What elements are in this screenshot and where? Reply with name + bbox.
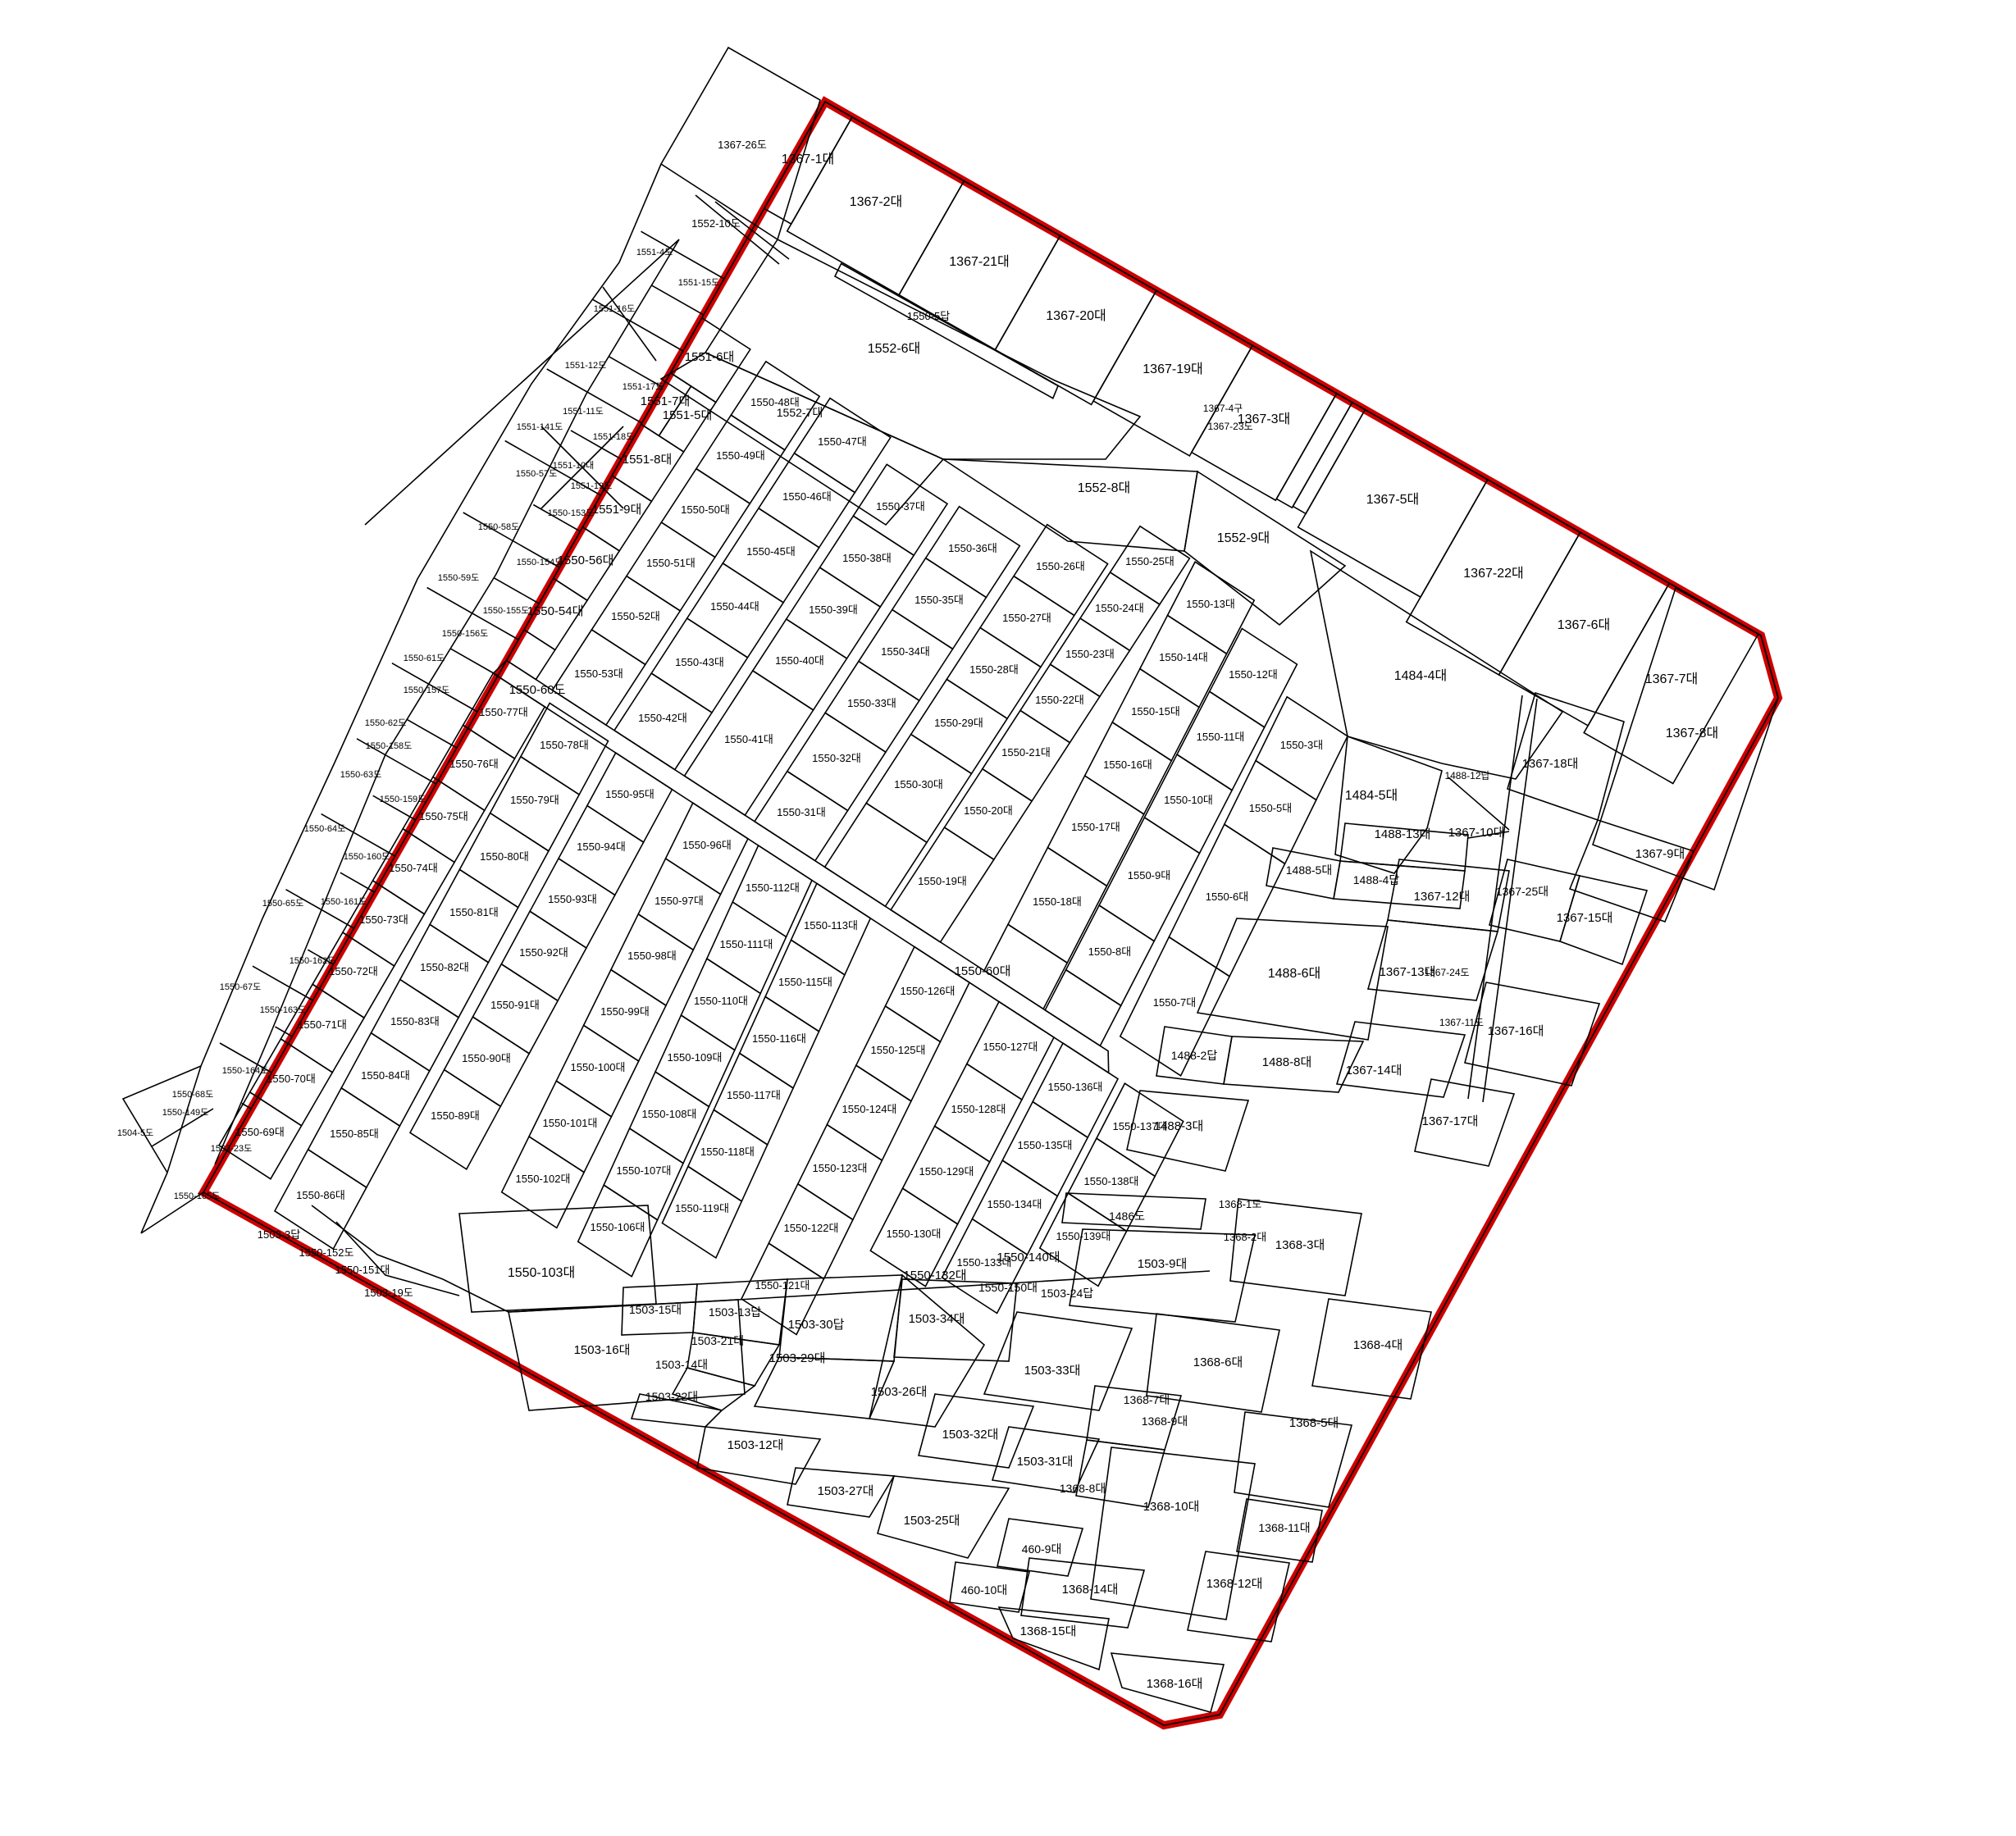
svg-text:1367-12대: 1367-12대 xyxy=(1414,890,1471,904)
svg-text:1550-154도: 1550-154도 xyxy=(517,558,563,567)
svg-text:1550-122대: 1550-122대 xyxy=(784,1222,839,1234)
svg-text:1550-12대: 1550-12대 xyxy=(1229,668,1278,681)
svg-text:1550-151대: 1550-151대 xyxy=(335,1264,390,1276)
svg-text:1550-150대: 1550-150대 xyxy=(978,1281,1038,1294)
svg-text:1488-2답: 1488-2답 xyxy=(1171,1049,1218,1062)
svg-text:1368-7대: 1368-7대 xyxy=(1124,1393,1170,1406)
svg-text:1503-14대: 1503-14대 xyxy=(655,1358,708,1371)
svg-text:1550-163도: 1550-163도 xyxy=(260,1005,307,1015)
svg-text:1368-15대: 1368-15대 xyxy=(1020,1624,1077,1638)
svg-text:1550-118대: 1550-118대 xyxy=(700,1146,755,1158)
svg-text:1550-62도: 1550-62도 xyxy=(365,718,407,728)
svg-text:1552-8대: 1552-8대 xyxy=(1078,481,1131,495)
svg-text:1550-76대: 1550-76대 xyxy=(449,758,499,770)
svg-text:1550-50대: 1550-50대 xyxy=(681,503,730,516)
svg-text:1550-23대: 1550-23대 xyxy=(1065,648,1115,660)
svg-text:1503-31대: 1503-31대 xyxy=(1017,1455,1074,1469)
svg-text:1550-119대: 1550-119대 xyxy=(675,1202,729,1214)
svg-text:1550-64도: 1550-64도 xyxy=(304,824,346,834)
svg-text:1367-15대: 1367-15대 xyxy=(1557,911,1613,925)
svg-text:1550-79대: 1550-79대 xyxy=(510,794,559,806)
svg-text:1550-100대: 1550-100대 xyxy=(571,1061,626,1073)
svg-text:1550-61도: 1550-61도 xyxy=(404,654,445,663)
svg-text:1503-3답: 1503-3답 xyxy=(258,1228,300,1241)
svg-text:1550-82대: 1550-82대 xyxy=(420,961,469,973)
svg-text:1550-36대: 1550-36대 xyxy=(948,542,997,554)
svg-text:1503-30답: 1503-30답 xyxy=(788,1318,845,1332)
svg-text:1550-37대: 1550-37대 xyxy=(876,500,925,513)
svg-text:1550-38대: 1550-38대 xyxy=(842,552,892,564)
svg-text:1550-109대: 1550-109대 xyxy=(668,1051,723,1064)
svg-text:1550-106대: 1550-106대 xyxy=(591,1221,645,1233)
svg-text:1550-68도: 1550-68도 xyxy=(172,1090,214,1100)
svg-text:1550-90대: 1550-90대 xyxy=(462,1052,511,1064)
svg-text:1550-57도: 1550-57도 xyxy=(516,469,558,479)
svg-text:1550-6대: 1550-6대 xyxy=(1206,891,1248,903)
svg-text:1367-21대: 1367-21대 xyxy=(949,254,1009,269)
svg-text:1550-17대: 1550-17대 xyxy=(1071,821,1120,833)
svg-text:1550-35대: 1550-35대 xyxy=(914,594,964,606)
svg-text:1550-26대: 1550-26대 xyxy=(1036,560,1085,572)
svg-text:1550-140대: 1550-140대 xyxy=(997,1251,1060,1264)
svg-text:1550-74대: 1550-74대 xyxy=(389,862,438,874)
svg-text:1368-12대: 1368-12대 xyxy=(1206,1577,1263,1591)
svg-text:1367-25대: 1367-25대 xyxy=(1496,885,1548,898)
svg-text:1550-108대: 1550-108대 xyxy=(642,1108,697,1120)
svg-text:1550-160도: 1550-160도 xyxy=(344,852,390,862)
svg-text:1367-8대: 1367-8대 xyxy=(1666,726,1719,740)
svg-text:1550-155도: 1550-155도 xyxy=(483,606,530,616)
svg-text:1550-112대: 1550-112대 xyxy=(746,882,800,894)
svg-text:1550-115대: 1550-115대 xyxy=(778,976,832,988)
svg-text:1550-58도: 1550-58도 xyxy=(478,522,520,532)
svg-text:1367-16대: 1367-16대 xyxy=(1488,1024,1544,1038)
svg-text:1550-71대: 1550-71대 xyxy=(298,1018,347,1031)
svg-text:1550-116대: 1550-116대 xyxy=(752,1032,806,1045)
svg-text:1550-13대: 1550-13대 xyxy=(1186,598,1235,610)
svg-text:1503-24답: 1503-24답 xyxy=(1041,1287,1093,1300)
svg-text:1550-101대: 1550-101대 xyxy=(543,1117,598,1129)
svg-text:1550-33대: 1550-33대 xyxy=(847,697,896,709)
svg-text:1550-59도: 1550-59도 xyxy=(438,573,480,583)
svg-text:1550-161도: 1550-161도 xyxy=(321,897,367,907)
svg-text:1550-20대: 1550-20대 xyxy=(964,804,1013,817)
svg-text:1367-19대: 1367-19대 xyxy=(1143,362,1202,376)
svg-text:1488-4답: 1488-4답 xyxy=(1353,873,1400,886)
svg-text:1550-103대: 1550-103대 xyxy=(508,1265,575,1280)
svg-text:1550-45대: 1550-45대 xyxy=(746,545,796,558)
svg-text:1550-47대: 1550-47대 xyxy=(818,435,867,448)
svg-text:1503-9대: 1503-9대 xyxy=(1138,1257,1188,1271)
svg-text:1503-27대: 1503-27대 xyxy=(818,1484,874,1498)
svg-text:1368-11대: 1368-11대 xyxy=(1258,1521,1310,1534)
svg-text:1550-153도: 1550-153도 xyxy=(548,508,595,518)
svg-text:1552-7대: 1552-7대 xyxy=(777,406,823,419)
svg-text:1488-13대: 1488-13대 xyxy=(1375,827,1431,841)
svg-text:1368-2대: 1368-2대 xyxy=(1224,1231,1266,1243)
svg-text:1550-46대: 1550-46대 xyxy=(782,490,832,503)
svg-text:1550-69대: 1550-69대 xyxy=(235,1126,285,1138)
svg-text:1550-125대: 1550-125대 xyxy=(871,1044,926,1056)
svg-text:1368-14대: 1368-14대 xyxy=(1062,1583,1119,1597)
svg-text:1550-86대: 1550-86대 xyxy=(296,1189,345,1201)
svg-text:1550-94대: 1550-94대 xyxy=(577,841,626,853)
svg-text:1551-11도: 1551-11도 xyxy=(563,407,604,417)
svg-text:1550-3대: 1550-3대 xyxy=(1280,739,1323,751)
svg-text:1551-12도: 1551-12도 xyxy=(565,361,607,371)
svg-text:1503-15대: 1503-15대 xyxy=(629,1303,682,1316)
svg-text:1550-54대: 1550-54대 xyxy=(527,604,584,618)
svg-text:1551-8대: 1551-8대 xyxy=(623,453,673,467)
svg-text:1550-129대: 1550-129대 xyxy=(919,1165,974,1178)
svg-text:1550-158도: 1550-158도 xyxy=(366,741,413,751)
svg-text:1550-80대: 1550-80대 xyxy=(480,850,529,863)
svg-text:1550-156도: 1550-156도 xyxy=(442,629,489,639)
svg-text:1550-96대: 1550-96대 xyxy=(682,839,732,851)
svg-text:1550-14대: 1550-14대 xyxy=(1159,651,1208,663)
svg-text:1550-73대: 1550-73대 xyxy=(359,913,408,926)
svg-text:1550-139대: 1550-139대 xyxy=(1056,1230,1111,1242)
svg-text:1550-42대: 1550-42대 xyxy=(638,712,687,724)
svg-text:1550-110대: 1550-110대 xyxy=(694,995,748,1007)
svg-text:1550-92대: 1550-92대 xyxy=(519,946,568,959)
svg-text:1484-4대: 1484-4대 xyxy=(1394,668,1448,683)
svg-text:1550-41대: 1550-41대 xyxy=(724,733,773,745)
svg-text:1551-7대: 1551-7대 xyxy=(641,394,691,408)
svg-text:1550-8대: 1550-8대 xyxy=(1088,945,1131,958)
svg-text:1367-17대: 1367-17대 xyxy=(1422,1114,1479,1128)
svg-text:1550-107대: 1550-107대 xyxy=(617,1164,672,1177)
svg-text:1550-75대: 1550-75대 xyxy=(419,810,468,822)
svg-text:1367-14대: 1367-14대 xyxy=(1346,1064,1403,1077)
svg-text:1503-16대: 1503-16대 xyxy=(574,1343,631,1357)
svg-text:1550-49대: 1550-49대 xyxy=(716,449,765,462)
svg-text:1503-32대: 1503-32대 xyxy=(942,1428,999,1442)
svg-text:1550-70대: 1550-70대 xyxy=(267,1073,316,1085)
svg-text:1550-21대: 1550-21대 xyxy=(1001,746,1051,759)
svg-text:1551-10대: 1551-10대 xyxy=(553,460,595,471)
svg-text:1552-9대: 1552-9대 xyxy=(1217,531,1270,545)
svg-text:1503-25대: 1503-25대 xyxy=(904,1514,960,1528)
svg-text:1552-6대: 1552-6대 xyxy=(868,341,921,356)
svg-text:1551-5대: 1551-5대 xyxy=(663,408,713,422)
svg-text:1550-124대: 1550-124대 xyxy=(842,1103,897,1115)
svg-text:1551-17도: 1551-17도 xyxy=(623,382,664,392)
svg-text:1550-138대: 1550-138대 xyxy=(1084,1175,1139,1187)
svg-text:1550-162도: 1550-162도 xyxy=(290,956,336,966)
svg-text:1550-85대: 1550-85대 xyxy=(330,1128,379,1140)
svg-text:1550-5답: 1550-5답 xyxy=(907,310,950,322)
svg-text:1550-44대: 1550-44대 xyxy=(710,600,759,613)
svg-text:1550-89대: 1550-89대 xyxy=(431,1109,480,1122)
svg-text:1368-1도: 1368-1도 xyxy=(1219,1198,1261,1210)
svg-text:1550-63도: 1550-63도 xyxy=(340,770,382,780)
svg-text:1550-43대: 1550-43대 xyxy=(675,656,724,668)
svg-text:1550-60도: 1550-60도 xyxy=(509,683,566,697)
svg-text:1552-10도: 1552-10도 xyxy=(691,217,741,230)
svg-text:1550-19대: 1550-19대 xyxy=(918,875,967,887)
svg-text:1550-27대: 1550-27대 xyxy=(1002,612,1051,624)
svg-text:1367-1대: 1367-1대 xyxy=(782,152,835,166)
svg-text:1550-83대: 1550-83대 xyxy=(390,1015,440,1027)
svg-text:1550-135대: 1550-135대 xyxy=(1018,1139,1073,1151)
svg-text:1367-13대: 1367-13대 xyxy=(1380,965,1436,979)
svg-text:1368-8대: 1368-8대 xyxy=(1060,1482,1106,1495)
svg-text:1550-93대: 1550-93대 xyxy=(548,893,597,905)
svg-text:1550-99대: 1550-99대 xyxy=(600,1005,650,1018)
svg-text:1550-60대: 1550-60대 xyxy=(955,964,1011,978)
svg-text:1368-16대: 1368-16대 xyxy=(1147,1677,1203,1691)
svg-text:1550-31대: 1550-31대 xyxy=(777,806,826,818)
svg-text:1550-30대: 1550-30대 xyxy=(894,778,943,790)
svg-text:1550-164도: 1550-164도 xyxy=(222,1066,269,1076)
svg-text:1367-5대: 1367-5대 xyxy=(1366,492,1420,507)
svg-text:1551-16도: 1551-16도 xyxy=(594,304,636,314)
svg-text:1503-13답: 1503-13답 xyxy=(709,1305,761,1319)
svg-text:1503-12대: 1503-12대 xyxy=(727,1438,784,1452)
svg-text:1368-3대: 1368-3대 xyxy=(1275,1238,1325,1252)
svg-text:1488-12답: 1488-12답 xyxy=(1444,770,1489,781)
svg-text:1550-84대: 1550-84대 xyxy=(361,1069,410,1082)
svg-text:1550-159도: 1550-159도 xyxy=(380,795,426,804)
svg-text:1368-6대: 1368-6대 xyxy=(1193,1355,1243,1369)
svg-text:1368-9대: 1368-9대 xyxy=(1142,1415,1188,1428)
svg-text:1550-25대: 1550-25대 xyxy=(1125,555,1174,567)
svg-text:1368-10대: 1368-10대 xyxy=(1143,1500,1200,1514)
svg-text:1550-10대: 1550-10대 xyxy=(1164,794,1213,806)
svg-text:1550-40대: 1550-40대 xyxy=(775,654,824,667)
svg-text:1550-136대: 1550-136대 xyxy=(1048,1081,1103,1093)
svg-text:1367-23도: 1367-23도 xyxy=(1207,421,1252,432)
svg-text:1488-6대: 1488-6대 xyxy=(1268,966,1321,981)
svg-text:1550-28대: 1550-28대 xyxy=(969,663,1019,676)
svg-text:1503-29대: 1503-29대 xyxy=(769,1351,826,1365)
svg-text:1550-97대: 1550-97대 xyxy=(655,895,704,907)
svg-text:1368-5대: 1368-5대 xyxy=(1289,1416,1339,1430)
svg-text:1550-15대: 1550-15대 xyxy=(1131,705,1180,718)
svg-text:1504-5도: 1504-5도 xyxy=(117,1128,153,1138)
svg-text:1367-18대: 1367-18대 xyxy=(1522,757,1579,771)
svg-text:1503-33대: 1503-33대 xyxy=(1024,1364,1081,1378)
svg-text:1551-9대: 1551-9대 xyxy=(592,503,642,517)
svg-text:1550-117대: 1550-117대 xyxy=(727,1089,781,1101)
svg-text:1503-23도: 1503-23도 xyxy=(211,1144,253,1154)
svg-text:1550-11대: 1550-11대 xyxy=(1197,731,1245,743)
svg-text:1484-5대: 1484-5대 xyxy=(1345,788,1398,803)
svg-text:1550-157도: 1550-157도 xyxy=(404,686,450,695)
svg-text:1550-81대: 1550-81대 xyxy=(449,906,499,918)
svg-text:1503-26대: 1503-26대 xyxy=(871,1385,928,1399)
svg-text:1550-102대: 1550-102대 xyxy=(516,1173,571,1185)
svg-text:1550-34대: 1550-34대 xyxy=(881,645,930,658)
svg-text:1550-39대: 1550-39대 xyxy=(809,604,858,616)
svg-text:1550-65도: 1550-65도 xyxy=(262,899,304,909)
svg-text:1367-7대: 1367-7대 xyxy=(1645,672,1699,686)
svg-text:1550-67도: 1550-67도 xyxy=(220,982,262,992)
svg-text:1367-10대: 1367-10대 xyxy=(1448,826,1505,840)
svg-text:1551-4도: 1551-4도 xyxy=(636,248,673,257)
svg-text:1367-6대: 1367-6대 xyxy=(1558,617,1611,632)
svg-text:1550-51대: 1550-51대 xyxy=(646,557,696,569)
svg-text:460-10대: 460-10대 xyxy=(961,1583,1007,1597)
svg-text:1488-3대: 1488-3대 xyxy=(1154,1119,1204,1133)
svg-text:1551-18도: 1551-18도 xyxy=(593,432,635,442)
svg-text:1550-52대: 1550-52대 xyxy=(611,610,660,622)
svg-text:1550-95대: 1550-95대 xyxy=(605,788,655,800)
svg-text:1550-18대: 1550-18대 xyxy=(1033,895,1082,908)
svg-text:1551-19도: 1551-19도 xyxy=(571,481,613,491)
svg-text:1550-91대: 1550-91대 xyxy=(490,999,540,1011)
svg-text:1550-72대: 1550-72대 xyxy=(329,965,378,977)
svg-text:1367-2대: 1367-2대 xyxy=(850,194,903,209)
svg-text:1503-21대: 1503-21대 xyxy=(691,1334,744,1347)
svg-text:1488-5대: 1488-5대 xyxy=(1286,863,1332,877)
svg-text:1550-22대: 1550-22대 xyxy=(1035,694,1084,706)
svg-text:1550-9대: 1550-9대 xyxy=(1128,869,1170,882)
svg-text:1550-24대: 1550-24대 xyxy=(1095,602,1144,614)
svg-text:1550-29대: 1550-29대 xyxy=(934,717,983,729)
svg-text:1503-22대: 1503-22대 xyxy=(645,1390,698,1403)
svg-text:1550-152도: 1550-152도 xyxy=(299,1246,354,1259)
svg-text:1550-134대: 1550-134대 xyxy=(987,1198,1042,1210)
svg-text:1550-111대: 1550-111대 xyxy=(720,938,773,950)
svg-text:1550-113대: 1550-113대 xyxy=(804,919,858,932)
svg-text:1367-4구: 1367-4구 xyxy=(1203,403,1243,414)
svg-text:1367-22대: 1367-22대 xyxy=(1463,566,1523,581)
svg-text:1550-5대: 1550-5대 xyxy=(1249,802,1292,814)
svg-text:1550-32대: 1550-32대 xyxy=(812,752,861,764)
svg-text:1550-127대: 1550-127대 xyxy=(983,1041,1038,1053)
svg-text:1550-77대: 1550-77대 xyxy=(479,706,528,718)
svg-text:1551-15도: 1551-15도 xyxy=(678,278,720,288)
svg-text:460-9대: 460-9대 xyxy=(1022,1542,1062,1556)
svg-text:1550-132대: 1550-132대 xyxy=(903,1269,966,1282)
svg-text:1550-123대: 1550-123대 xyxy=(813,1162,868,1174)
svg-text:1368-4대: 1368-4대 xyxy=(1353,1338,1403,1352)
svg-text:1550-78대: 1550-78대 xyxy=(540,739,589,751)
svg-text:1488-8대: 1488-8대 xyxy=(1262,1055,1312,1069)
svg-text:1367-9대: 1367-9대 xyxy=(1635,847,1685,861)
svg-text:1503-19도: 1503-19도 xyxy=(364,1287,413,1299)
svg-text:1550-126대: 1550-126대 xyxy=(901,985,956,997)
svg-text:1367-26도: 1367-26도 xyxy=(718,139,767,151)
svg-text:1550-56대: 1550-56대 xyxy=(558,554,614,567)
svg-text:1503-34대: 1503-34대 xyxy=(909,1312,965,1326)
svg-text:1550-130대: 1550-130대 xyxy=(887,1228,942,1240)
svg-text:1551-141도: 1551-141도 xyxy=(517,422,563,432)
svg-text:1550-7대: 1550-7대 xyxy=(1153,996,1196,1009)
svg-text:1550-16대: 1550-16대 xyxy=(1103,759,1152,771)
svg-text:1550-128대: 1550-128대 xyxy=(951,1103,1006,1115)
svg-text:1486도: 1486도 xyxy=(1109,1210,1145,1223)
svg-text:1550-98대: 1550-98대 xyxy=(627,950,677,962)
svg-text:1550-53대: 1550-53대 xyxy=(574,667,623,680)
svg-text:1367-20대: 1367-20대 xyxy=(1046,308,1106,323)
